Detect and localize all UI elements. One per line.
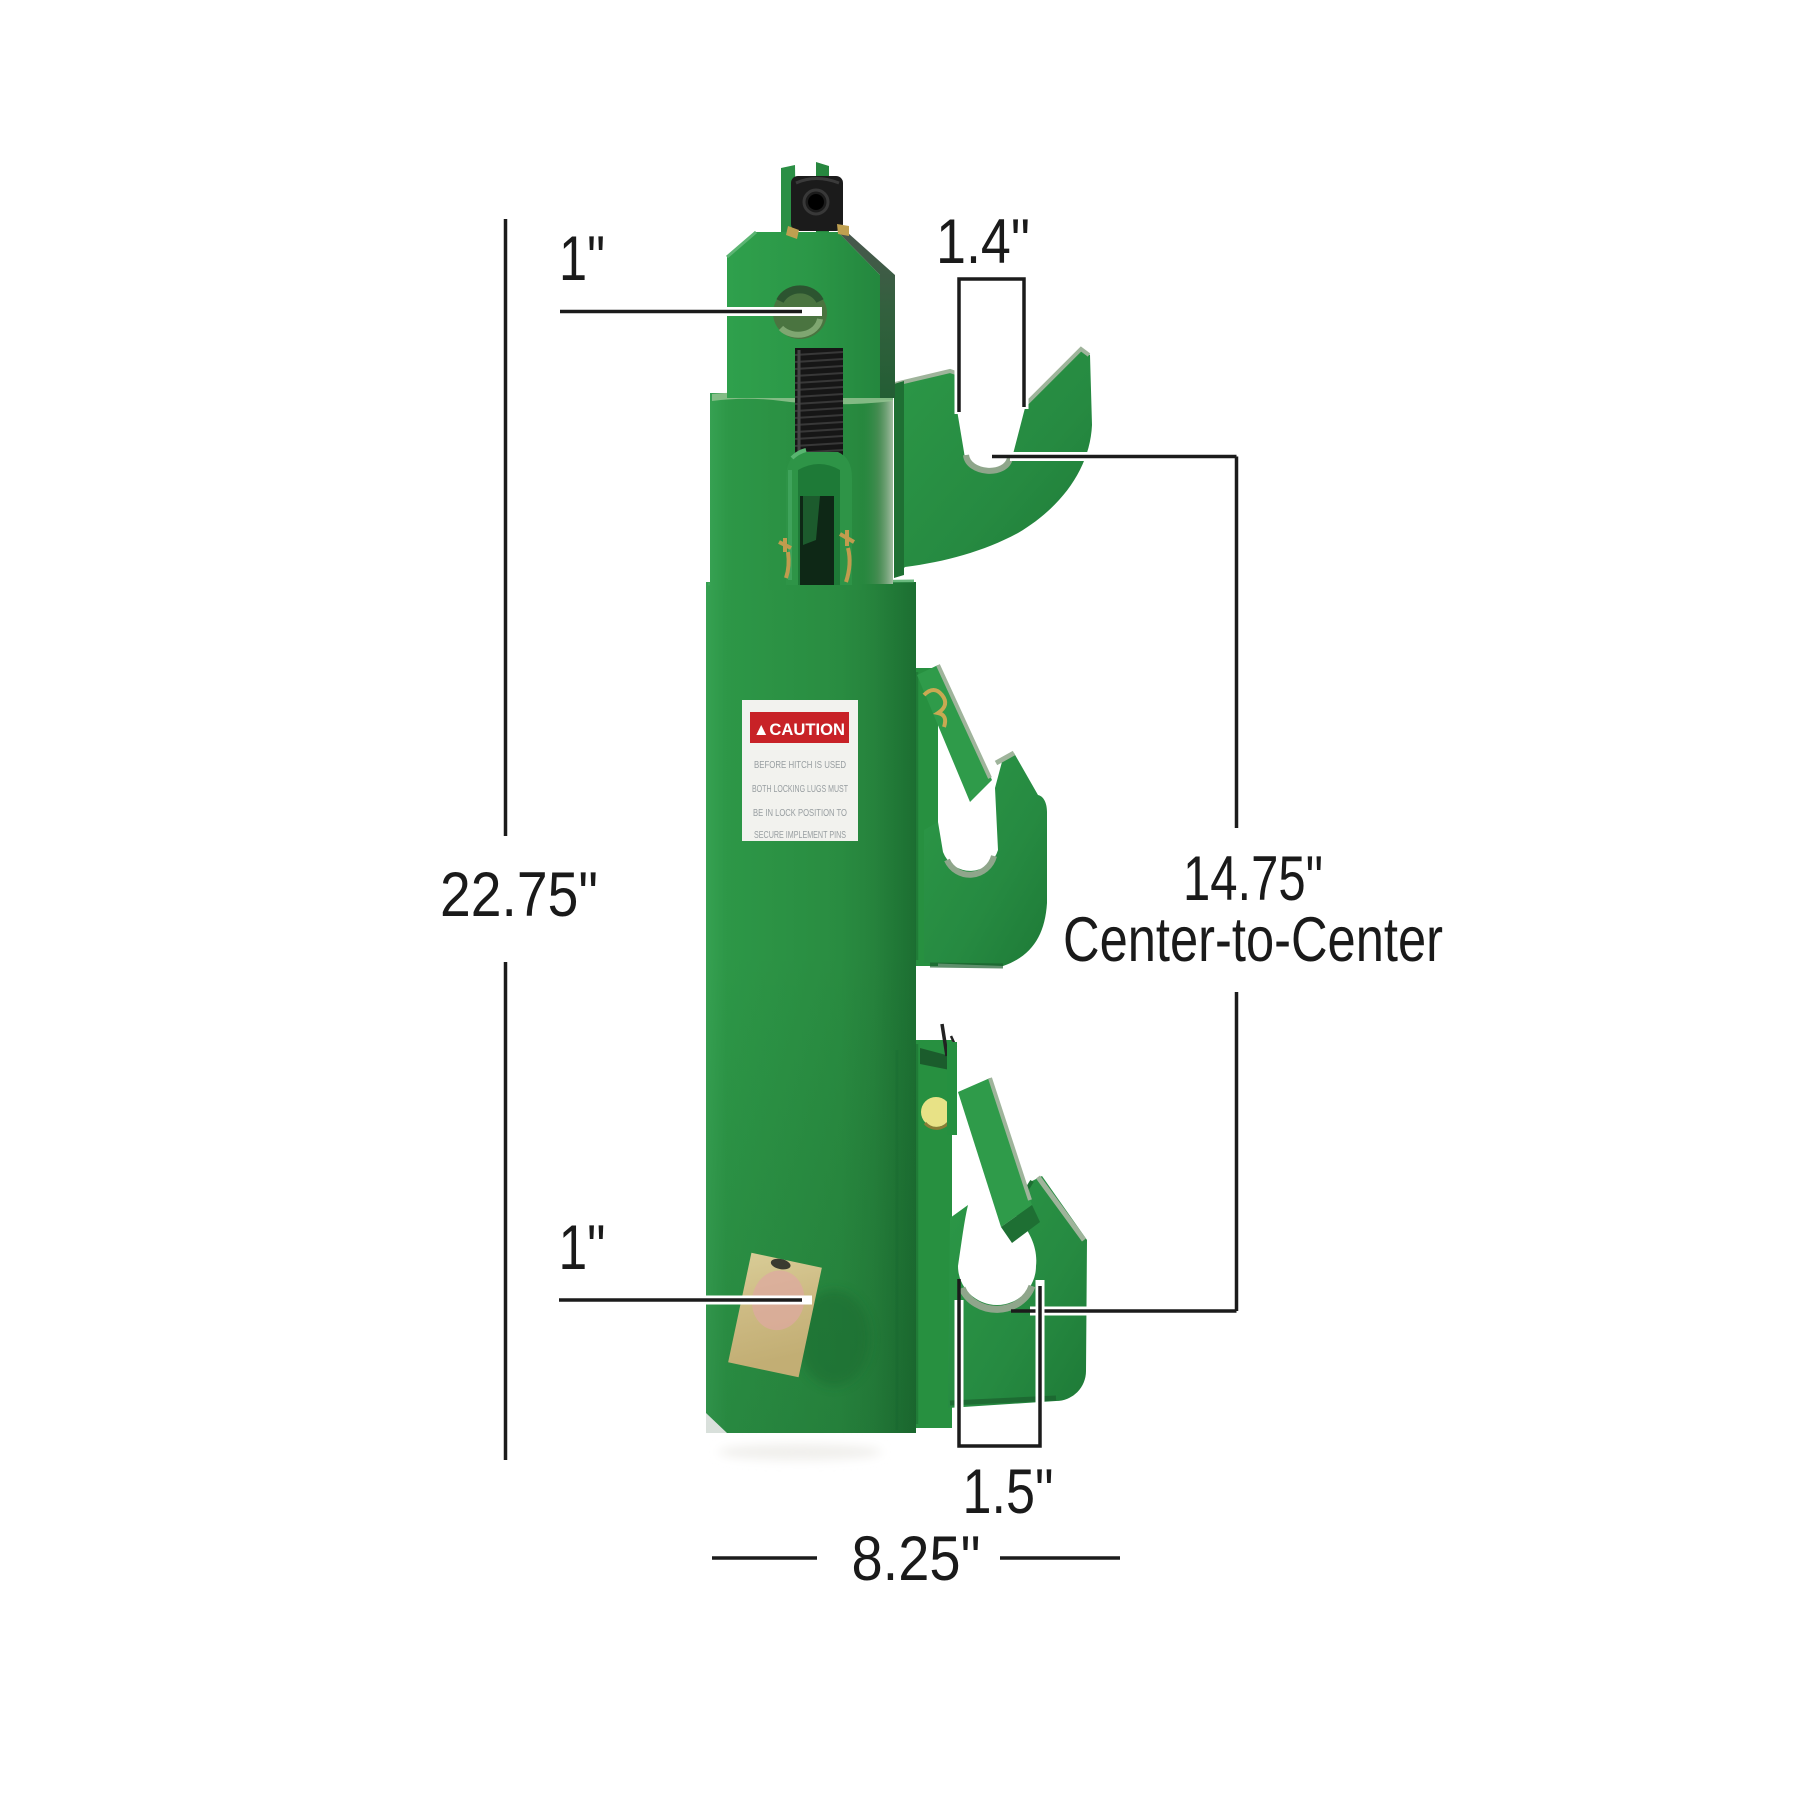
svg-text:14.75": 14.75" <box>1183 844 1323 914</box>
svg-text:BEFORE HITCH IS USED: BEFORE HITCH IS USED <box>754 760 846 771</box>
svg-text:8.25": 8.25" <box>852 1524 981 1594</box>
svg-text:1.5": 1.5" <box>963 1457 1054 1527</box>
svg-text:1": 1" <box>559 1213 606 1283</box>
svg-text:1": 1" <box>559 224 605 294</box>
svg-text:BOTH LOCKING LUGS MUST: BOTH LOCKING LUGS MUST <box>752 784 848 795</box>
svg-text:▲CAUTION: ▲CAUTION <box>753 720 845 739</box>
svg-text:BE IN LOCK POSITION TO: BE IN LOCK POSITION TO <box>753 808 847 819</box>
svg-text:Center-to-Center: Center-to-Center <box>1063 905 1443 975</box>
svg-text:22.75": 22.75" <box>440 860 598 930</box>
svg-text:SECURE IMPLEMENT PINS: SECURE IMPLEMENT PINS <box>754 830 846 841</box>
svg-text:1.4": 1.4" <box>936 207 1030 277</box>
